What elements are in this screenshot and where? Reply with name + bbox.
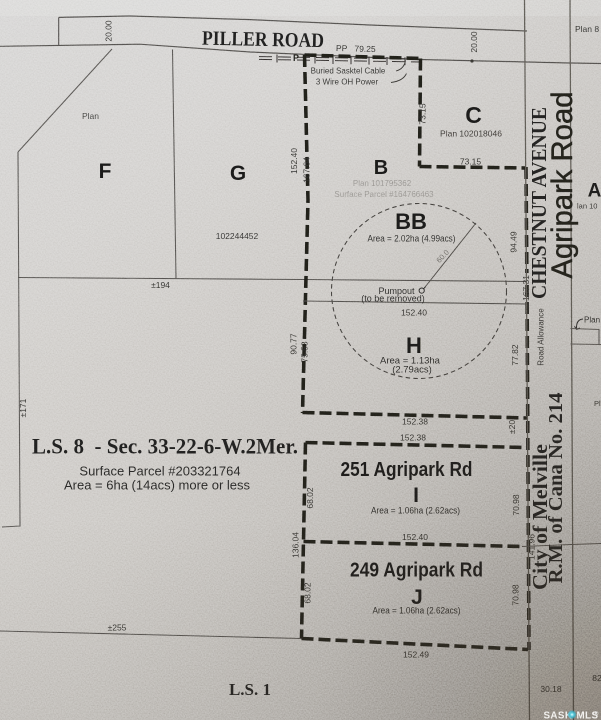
svg-text:®: ®	[594, 709, 599, 717]
